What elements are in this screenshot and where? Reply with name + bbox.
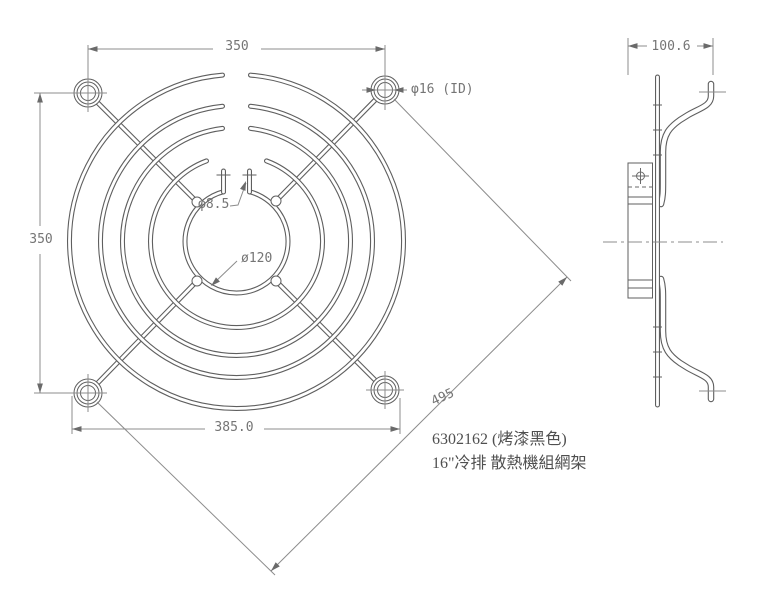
- dimension-outer-width: 385.0: [212, 421, 255, 435]
- dimension-top-width: 350: [223, 40, 250, 54]
- label-center-ring-diameter: ø120: [239, 252, 274, 266]
- dimension-side-depth: 100.6: [649, 40, 692, 54]
- label-wire-end-hole-diameter: φ8.5: [196, 198, 231, 212]
- engineering-drawing-page: 350 350 385.0 495 φ16 (ID) φ8.5 ø120 100…: [0, 0, 770, 616]
- part-description-note: 16"冷排 散熱機組網架: [432, 454, 587, 473]
- dimension-left-height: 350: [27, 233, 54, 247]
- part-number-note: 6302162 (烤漆黑色): [432, 430, 567, 449]
- label-mount-hole-diameter: φ16 (ID): [409, 83, 476, 97]
- fan-guard-drawing-canvas: [0, 0, 770, 616]
